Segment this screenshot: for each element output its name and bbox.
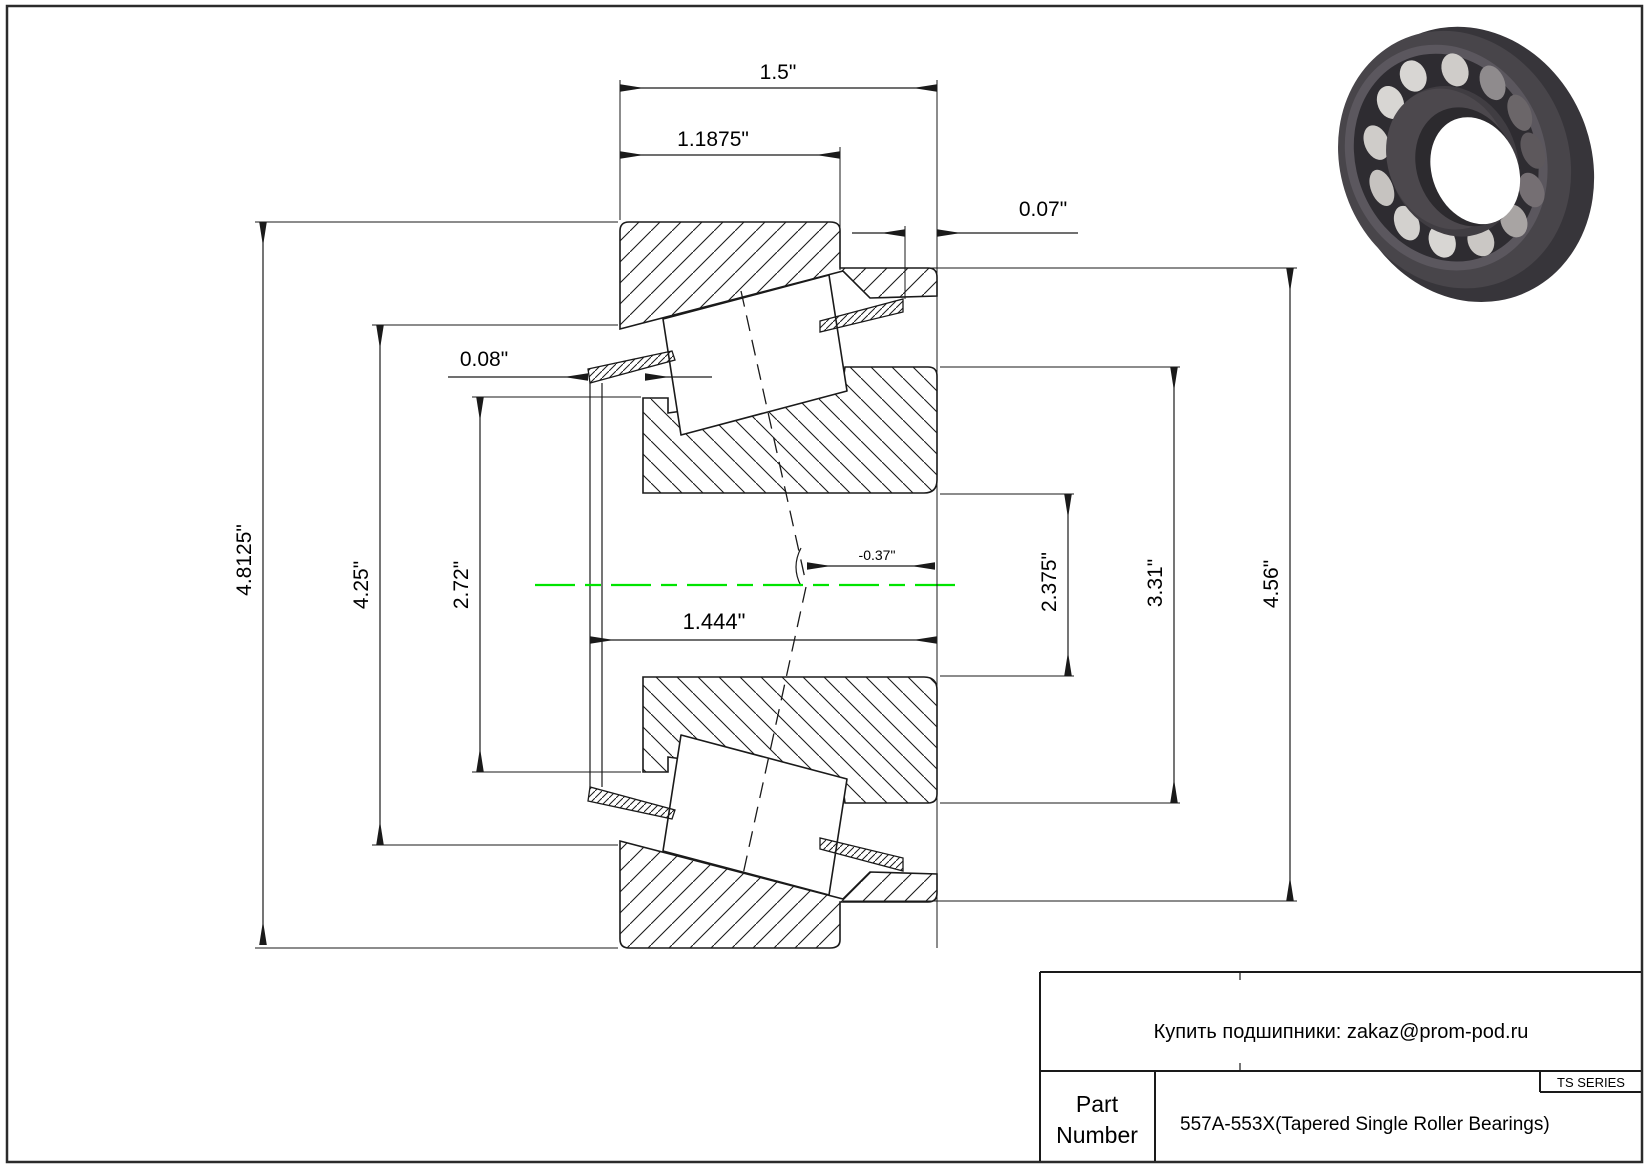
dim-rib-od: 3.31" xyxy=(1144,559,1167,607)
dim-flange-od: 4.8125" xyxy=(233,524,256,596)
title-block: Купить подшипники: zakaz@prom-pod.ru TS … xyxy=(1040,972,1641,1161)
seal-strip-top-left xyxy=(588,351,675,383)
dim-cup-od: 4.56" xyxy=(1260,560,1283,608)
dim-flange-id: 4.25" xyxy=(350,561,373,609)
dim-flange-width: 1.1875" xyxy=(677,128,749,151)
part-number-text: 557A-553X(Tapered Single Roller Bearings… xyxy=(1180,1114,1550,1135)
apex-arc-mark xyxy=(796,548,801,586)
dim-cup-width: 1.5" xyxy=(760,61,797,84)
dim-cone-width: 1.444" xyxy=(683,609,746,634)
bearing-3d-render xyxy=(1300,0,1635,341)
dim-load-center: -0.37" xyxy=(859,547,896,563)
part-label-line1: Part xyxy=(1076,1091,1119,1117)
dim-cup-standout: 0.07" xyxy=(1019,198,1067,221)
seal-strip-bottom-left xyxy=(588,787,675,819)
dim-seal-standout: 0.08" xyxy=(460,348,508,371)
dim-cone-front-od: 2.72" xyxy=(450,561,473,609)
part-label-line2: Number xyxy=(1056,1122,1138,1148)
dim-bore: 2.375" xyxy=(1038,552,1061,612)
series-label: TS SERIES xyxy=(1557,1075,1625,1090)
contact-text: Купить подшипники: zakaz@prom-pod.ru xyxy=(1154,1021,1529,1043)
bearing-drawing-canvas: 1.5" 1.1875" 0.07" 0.08" -0.37" 1.444" 4… xyxy=(0,0,1649,1167)
drawing-page: 1.5" 1.1875" 0.07" 0.08" -0.37" 1.444" 4… xyxy=(0,0,1649,1167)
